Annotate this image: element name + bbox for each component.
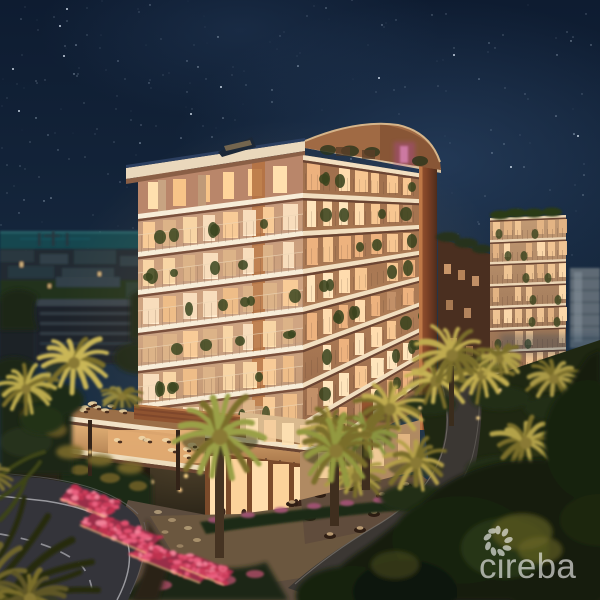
svg-text:cireba: cireba	[479, 547, 576, 586]
